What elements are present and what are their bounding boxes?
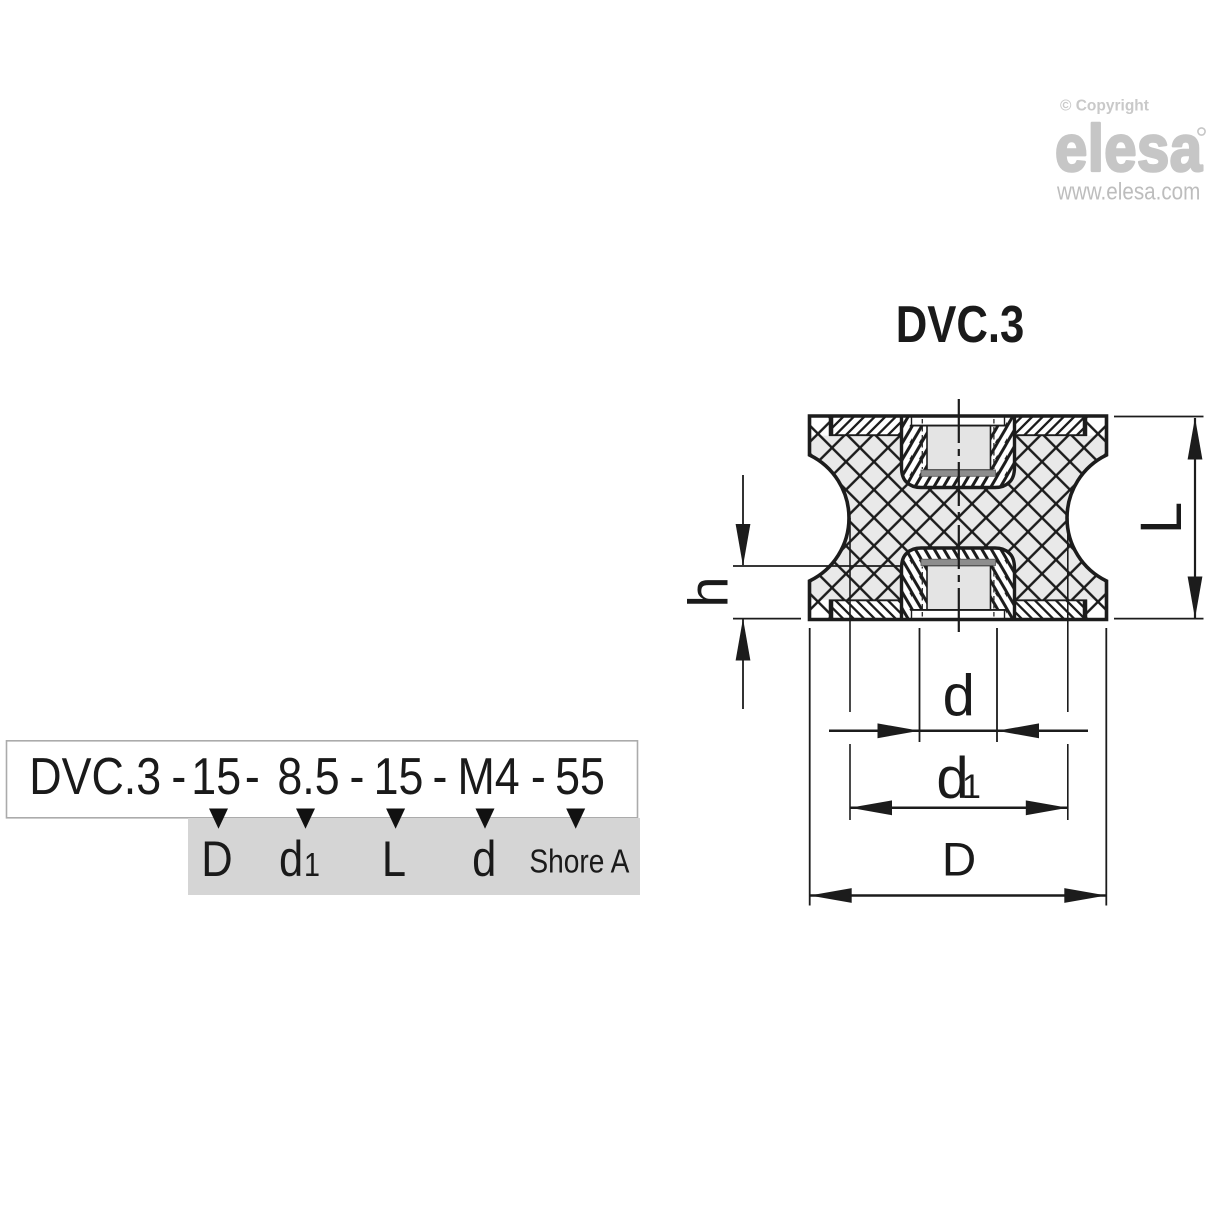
svg-text:-: - [245,748,260,806]
svg-text:DVC.3: DVC.3 [896,297,1025,354]
svg-text:-: - [171,748,186,806]
svg-text:-: - [432,748,447,806]
svg-text:d: d [472,831,496,886]
svg-text:1: 1 [962,768,981,806]
svg-text:15: 15 [191,748,241,806]
svg-text:elesa: elesa [1055,113,1203,186]
svg-text:DVC.3: DVC.3 [29,748,161,806]
svg-text:d: d [943,664,975,729]
svg-text:-: - [350,748,365,806]
svg-text:D: D [942,834,976,887]
svg-text:L: L [1129,502,1194,534]
svg-text:h: h [677,576,740,607]
svg-text:15: 15 [374,748,424,806]
svg-text:D: D [201,831,232,886]
svg-text:-: - [531,748,546,806]
svg-text:L: L [382,831,406,886]
svg-text:M4: M4 [457,748,519,806]
svg-text:8.5: 8.5 [277,748,339,806]
svg-text:d: d [279,831,303,886]
svg-text:1: 1 [304,846,320,883]
svg-text:www.elesa.com: www.elesa.com [1056,178,1200,205]
svg-text:55: 55 [555,748,605,806]
svg-text:Shore A: Shore A [529,842,629,880]
